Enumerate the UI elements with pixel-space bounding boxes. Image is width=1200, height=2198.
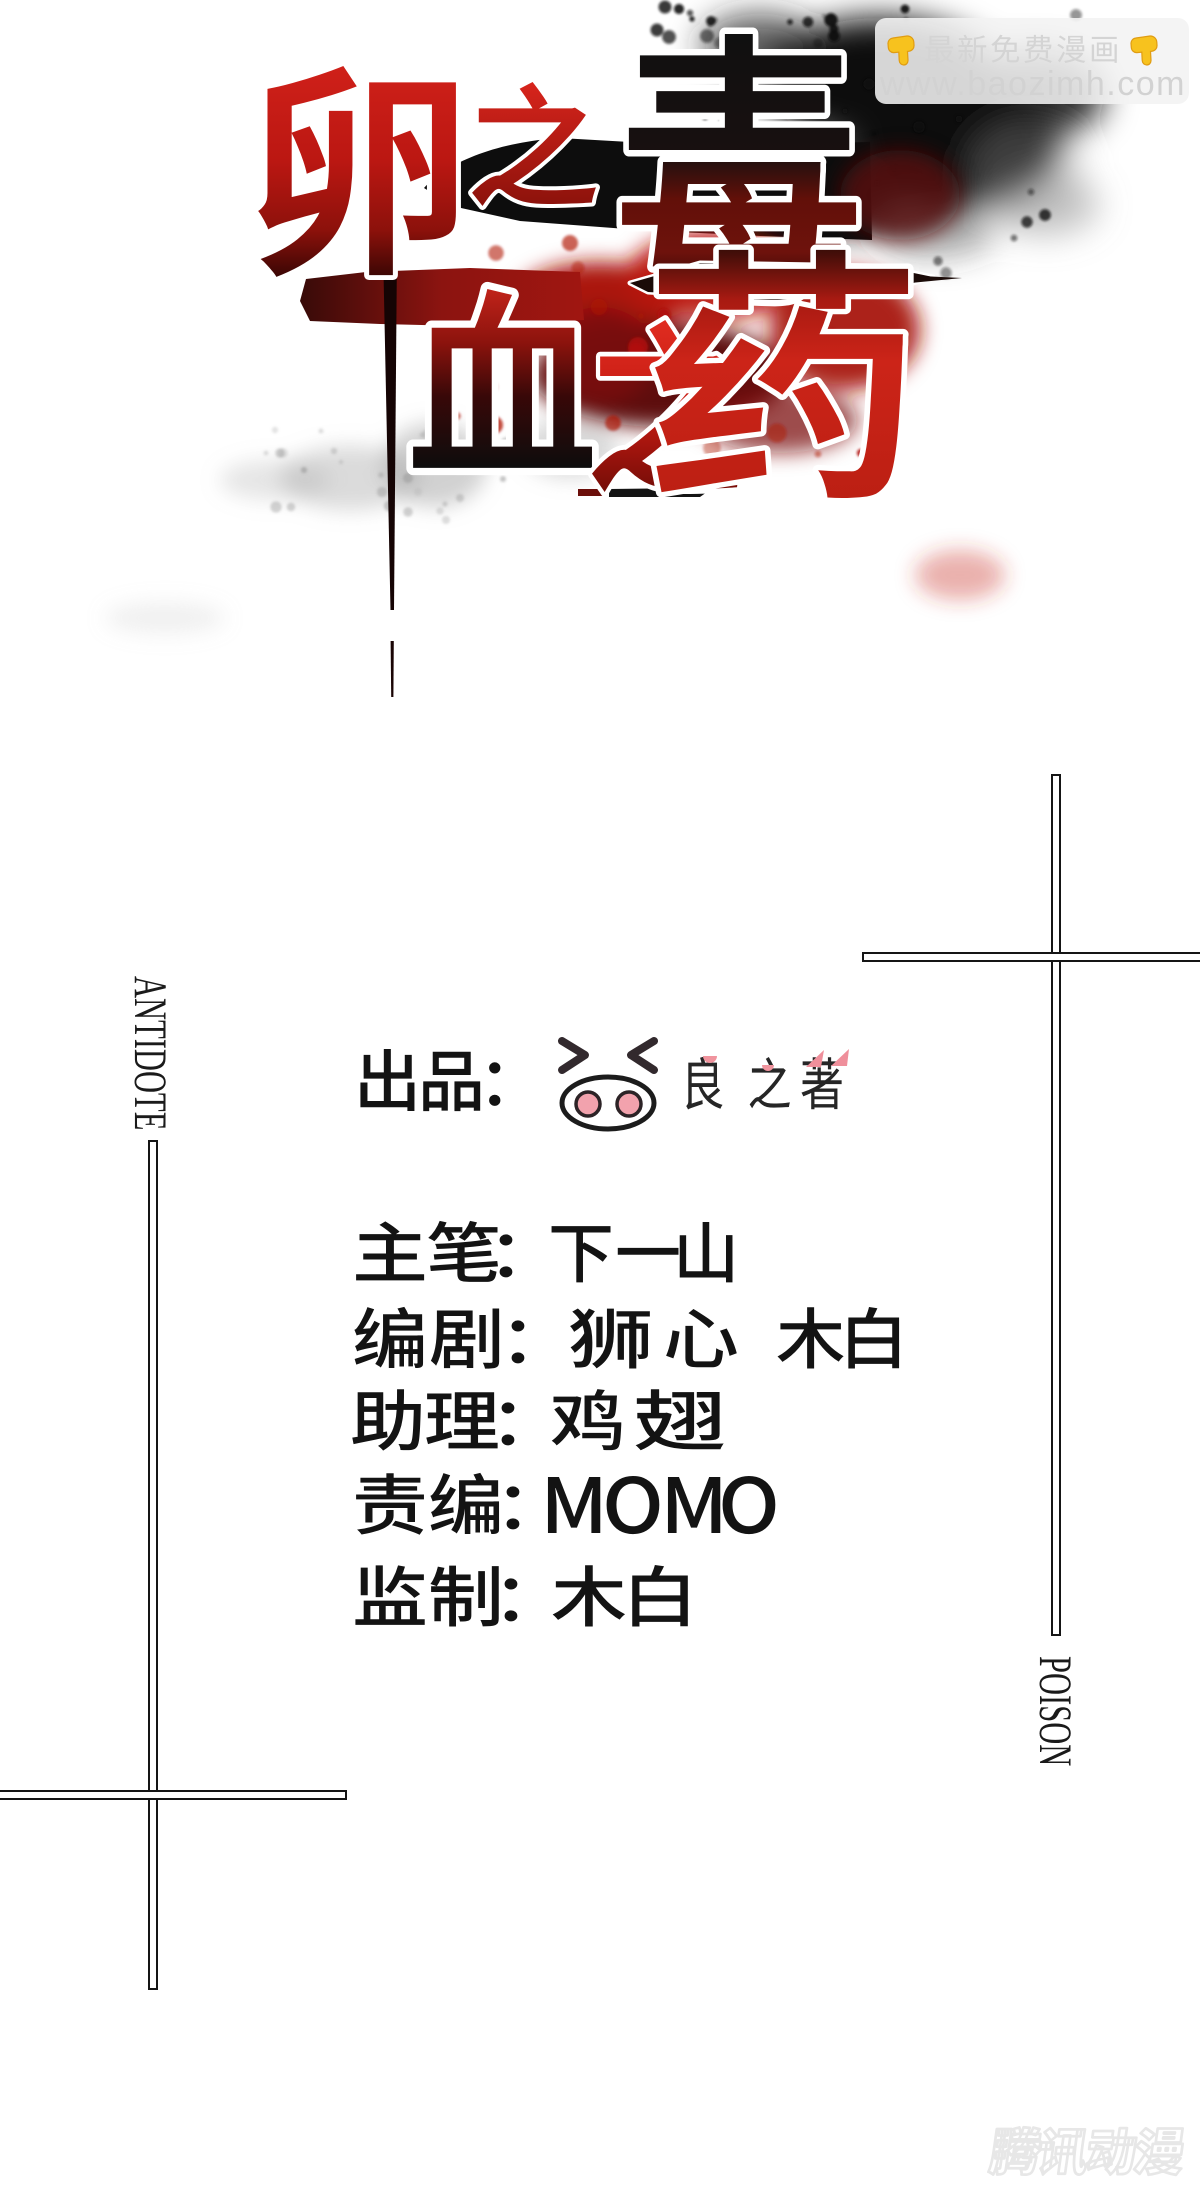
- svg-text:POISON: POISON: [1029, 1656, 1081, 1766]
- svg-text:ANTIDOTE: ANTIDOTE: [124, 976, 176, 1130]
- svg-text:www.baozimh.com: www.baozimh.com: [879, 65, 1186, 103]
